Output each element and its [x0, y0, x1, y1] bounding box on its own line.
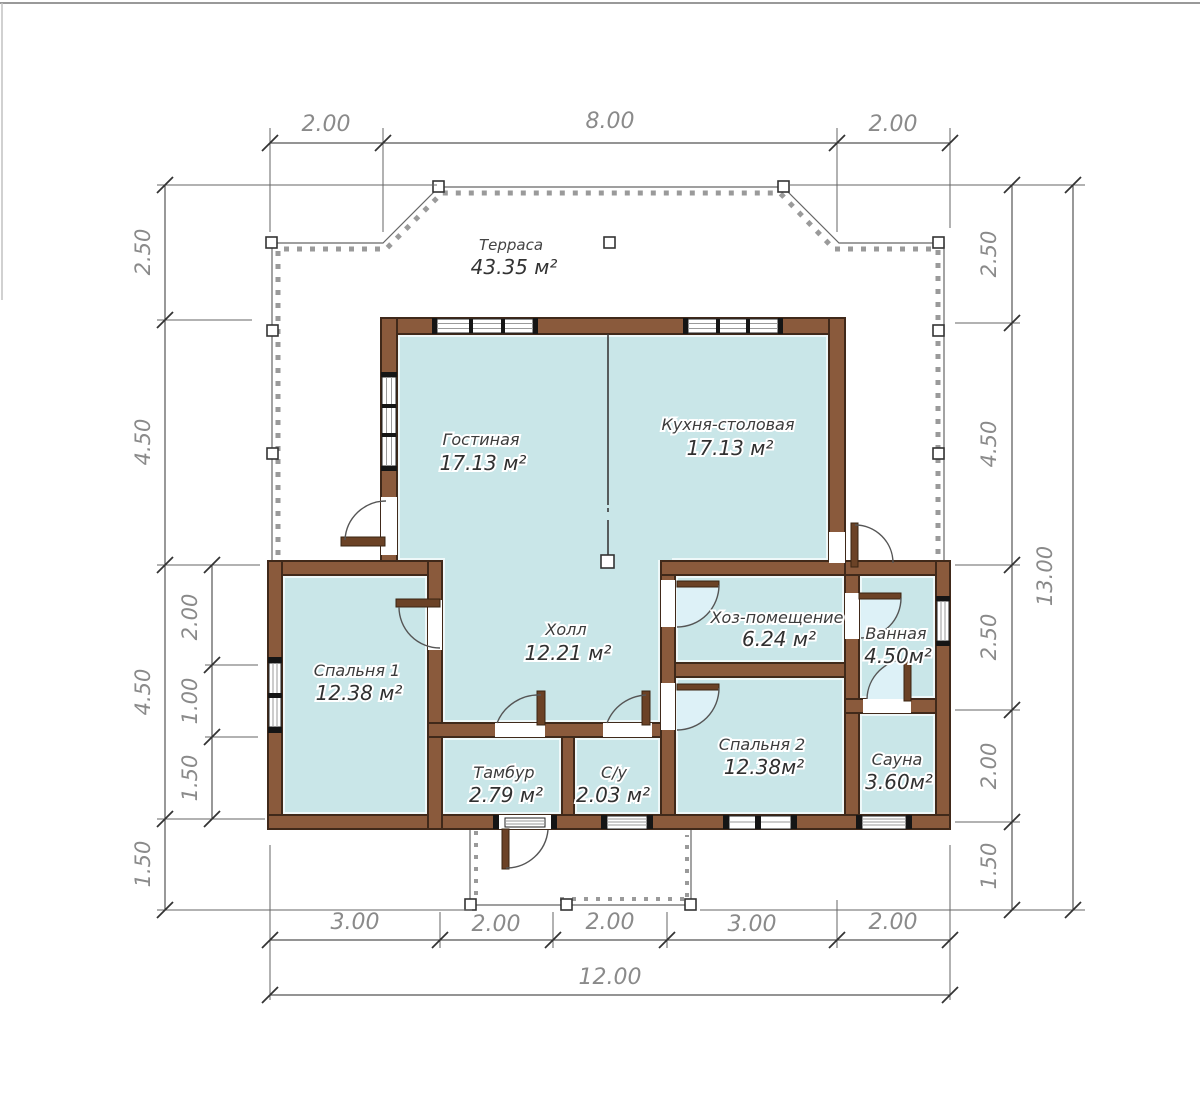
dim-label: 1.50: [131, 841, 155, 888]
room-area-vestibule: 2.79 м²: [469, 783, 543, 807]
dim-label: 12.00: [579, 965, 642, 990]
window-living-left: [381, 372, 397, 471]
door-entry: [493, 815, 557, 869]
window-bedroom1-left: [268, 657, 282, 733]
floor-plan-canvas: Терраса 43.35 м² Гостиная 17.13 м² Кухня…: [0, 0, 1200, 1114]
terrace-post: [433, 181, 444, 192]
dim-label: 1.50: [178, 755, 202, 802]
room-label-vestibule: Тамбур: [473, 763, 534, 782]
floor-plan-drawing: Терраса 43.35 м² Гостиная 17.13 м² Кухня…: [0, 0, 1200, 1114]
room-label-living: Гостиная: [442, 430, 519, 449]
terrace-post: [267, 325, 278, 336]
dim-label: 13.00: [1033, 546, 1057, 606]
room-label-kitchen: Кухня-столовая: [662, 415, 795, 434]
room-area-sauna: 3.60м²: [865, 770, 933, 794]
room-label-hall: Холл: [544, 620, 586, 639]
room-area-living: 17.13 м²: [440, 451, 527, 475]
terrace-post: [266, 237, 277, 248]
porch-post: [465, 899, 476, 910]
room-area-terrace: 43.35 м²: [471, 255, 558, 279]
terrace-post: [267, 448, 278, 459]
dim-label: 3.00: [331, 910, 380, 935]
window-bathroom-right: [936, 596, 950, 646]
dim-chain-top: 2.00 8.00 2.00: [262, 109, 958, 232]
room-label-utility: Хоз-помещение: [710, 608, 844, 627]
divider-post: [601, 555, 614, 568]
dim-label: 2.00: [586, 910, 635, 935]
wall-bathroom-top: [845, 561, 950, 575]
dim-label: 3.00: [728, 912, 777, 937]
room-area-bedroom2: 12.38м²: [724, 755, 804, 779]
wall-utility-bedroom2: [675, 663, 845, 677]
dim-label: 2.00: [977, 743, 1001, 790]
room-area-kitchen: 17.13 м²: [687, 436, 774, 460]
wall-kitchen-right: [829, 318, 845, 563]
dim-label: 1.50: [977, 843, 1001, 890]
terrace-post: [933, 325, 944, 336]
room-label-sauna: Сауна: [872, 750, 923, 769]
room-area-wc: 2.03 м²: [576, 783, 650, 807]
dim-label: 2.00: [869, 910, 918, 935]
dim-label: 2.00: [472, 912, 521, 937]
dim-label: 2.50: [131, 229, 155, 276]
room-area-utility: 6.24 м²: [742, 627, 816, 651]
porch-post: [561, 899, 572, 910]
room-label-bedroom1: Спальня 1: [314, 661, 400, 680]
window-kitchen-top: [683, 318, 783, 334]
room-area-hall: 12.21 м²: [525, 641, 612, 665]
dim-chain-left-inner: 2.00 1.00 1.50: [178, 557, 258, 827]
terrace-post: [778, 181, 789, 192]
dim-label: 1.00: [178, 678, 202, 725]
dim-label: 4.50: [131, 669, 155, 716]
window-living-top: [432, 318, 538, 334]
dim-label: 2.00: [869, 112, 918, 137]
dim-label: 2.00: [178, 594, 202, 641]
dim-label: 4.50: [977, 421, 1001, 468]
room-area-bathroom: 4.50м²: [864, 644, 932, 668]
wall-kitchen-bottom: [661, 561, 845, 575]
door-living-terrace: [341, 497, 397, 555]
dim-label: 4.50: [131, 419, 155, 466]
window-bedroom2-bottom: [723, 815, 797, 829]
wall-vestibule-wc: [562, 737, 574, 815]
room-area-bedroom1: 12.38 м²: [316, 681, 403, 705]
dim-chain-bottom-total: 12.00: [262, 965, 958, 1003]
dim-label: 8.00: [586, 109, 635, 134]
terrace-post: [933, 448, 944, 459]
wall-bedroom1-top: [268, 561, 442, 575]
terrace-post: [604, 237, 615, 248]
window-sauna-bottom: [856, 815, 912, 829]
room-label-bedroom2: Спальня 2: [719, 735, 805, 754]
room-label-terrace: Терраса: [479, 236, 543, 254]
porch-post: [685, 899, 696, 910]
window-wc-bottom: [601, 815, 653, 829]
room-label-wc: С/у: [601, 763, 628, 782]
room-label-bathroom: Ванная: [865, 624, 927, 643]
dim-label: 2.50: [977, 614, 1001, 661]
dim-label: 2.00: [302, 112, 351, 137]
dim-chain-right-total: 13.00: [1033, 177, 1081, 918]
terrace-post: [933, 237, 944, 248]
dim-label: 2.50: [977, 231, 1001, 278]
porch-outline: [465, 829, 696, 910]
